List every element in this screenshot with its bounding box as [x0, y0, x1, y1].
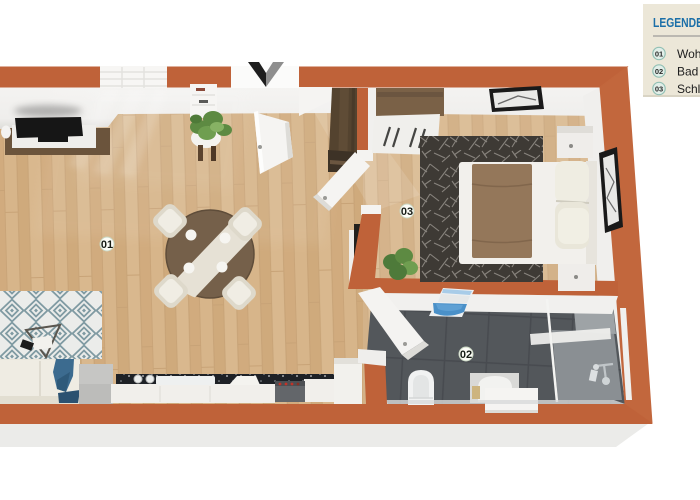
- svg-text:Bad: Bad: [677, 65, 698, 79]
- svg-text:02: 02: [655, 67, 663, 76]
- svg-text:Wohnen: Wohnen: [677, 47, 700, 61]
- svg-text:01: 01: [101, 239, 113, 251]
- svg-text:LEGENDE: LEGENDE: [653, 15, 700, 30]
- svg-text:03: 03: [655, 84, 663, 93]
- svg-text:02: 02: [460, 349, 472, 361]
- svg-text:01: 01: [655, 49, 663, 58]
- svg-text:03: 03: [401, 206, 413, 218]
- svg-text:Schlafen: Schlafen: [677, 82, 700, 96]
